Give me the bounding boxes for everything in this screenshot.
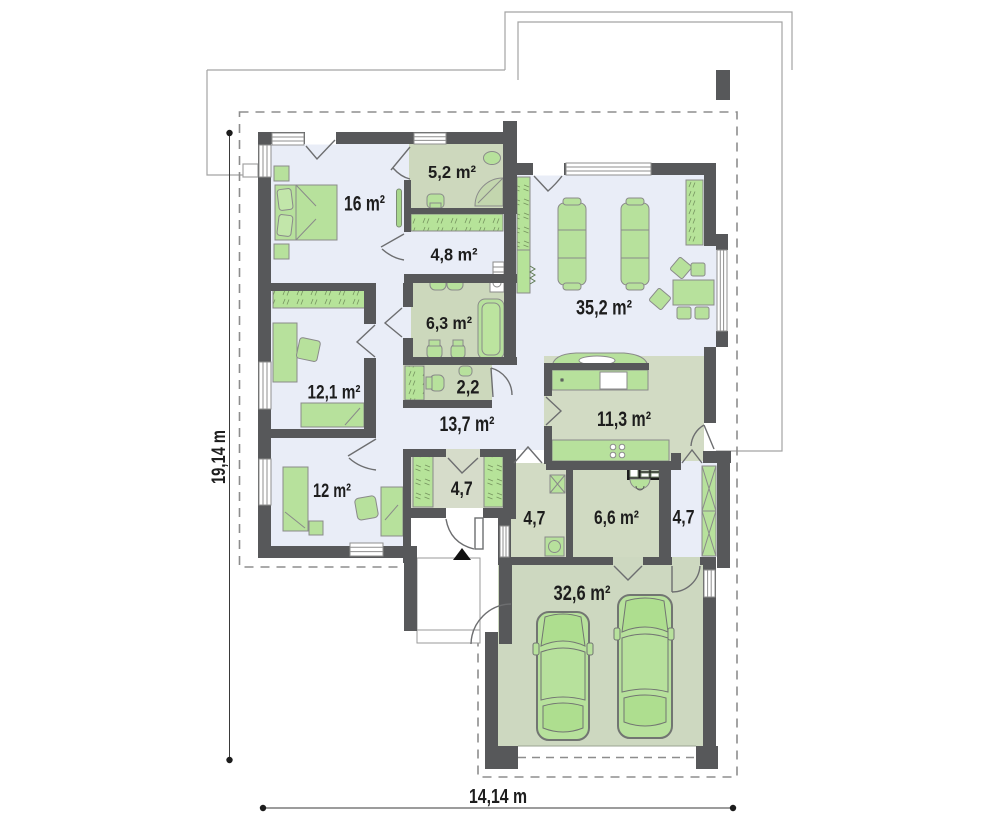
svg-text:16 m²: 16 m² bbox=[344, 192, 385, 216]
svg-text:19,14 m: 19,14 m bbox=[209, 430, 230, 484]
svg-text:35,2 m²: 35,2 m² bbox=[576, 297, 632, 320]
svg-text:2,2: 2,2 bbox=[457, 378, 480, 399]
svg-text:4,7: 4,7 bbox=[523, 509, 545, 530]
svg-text:32,6 m²: 32,6 m² bbox=[554, 582, 611, 605]
svg-text:4,7: 4,7 bbox=[451, 479, 473, 500]
svg-text:6,6 m²: 6,6 m² bbox=[594, 508, 639, 529]
svg-text:14,14 m: 14,14 m bbox=[469, 786, 527, 808]
svg-text:13,7 m²: 13,7 m² bbox=[440, 413, 495, 436]
svg-text:12 m²: 12 m² bbox=[313, 481, 351, 502]
svg-text:4,8 m²: 4,8 m² bbox=[431, 245, 478, 265]
svg-text:5,2 m²: 5,2 m² bbox=[428, 162, 476, 182]
svg-text:6,3 m²: 6,3 m² bbox=[426, 313, 472, 333]
svg-text:4,7: 4,7 bbox=[673, 508, 695, 529]
svg-text:11,3 m²: 11,3 m² bbox=[597, 408, 651, 431]
svg-text:12,1 m²: 12,1 m² bbox=[308, 383, 361, 404]
